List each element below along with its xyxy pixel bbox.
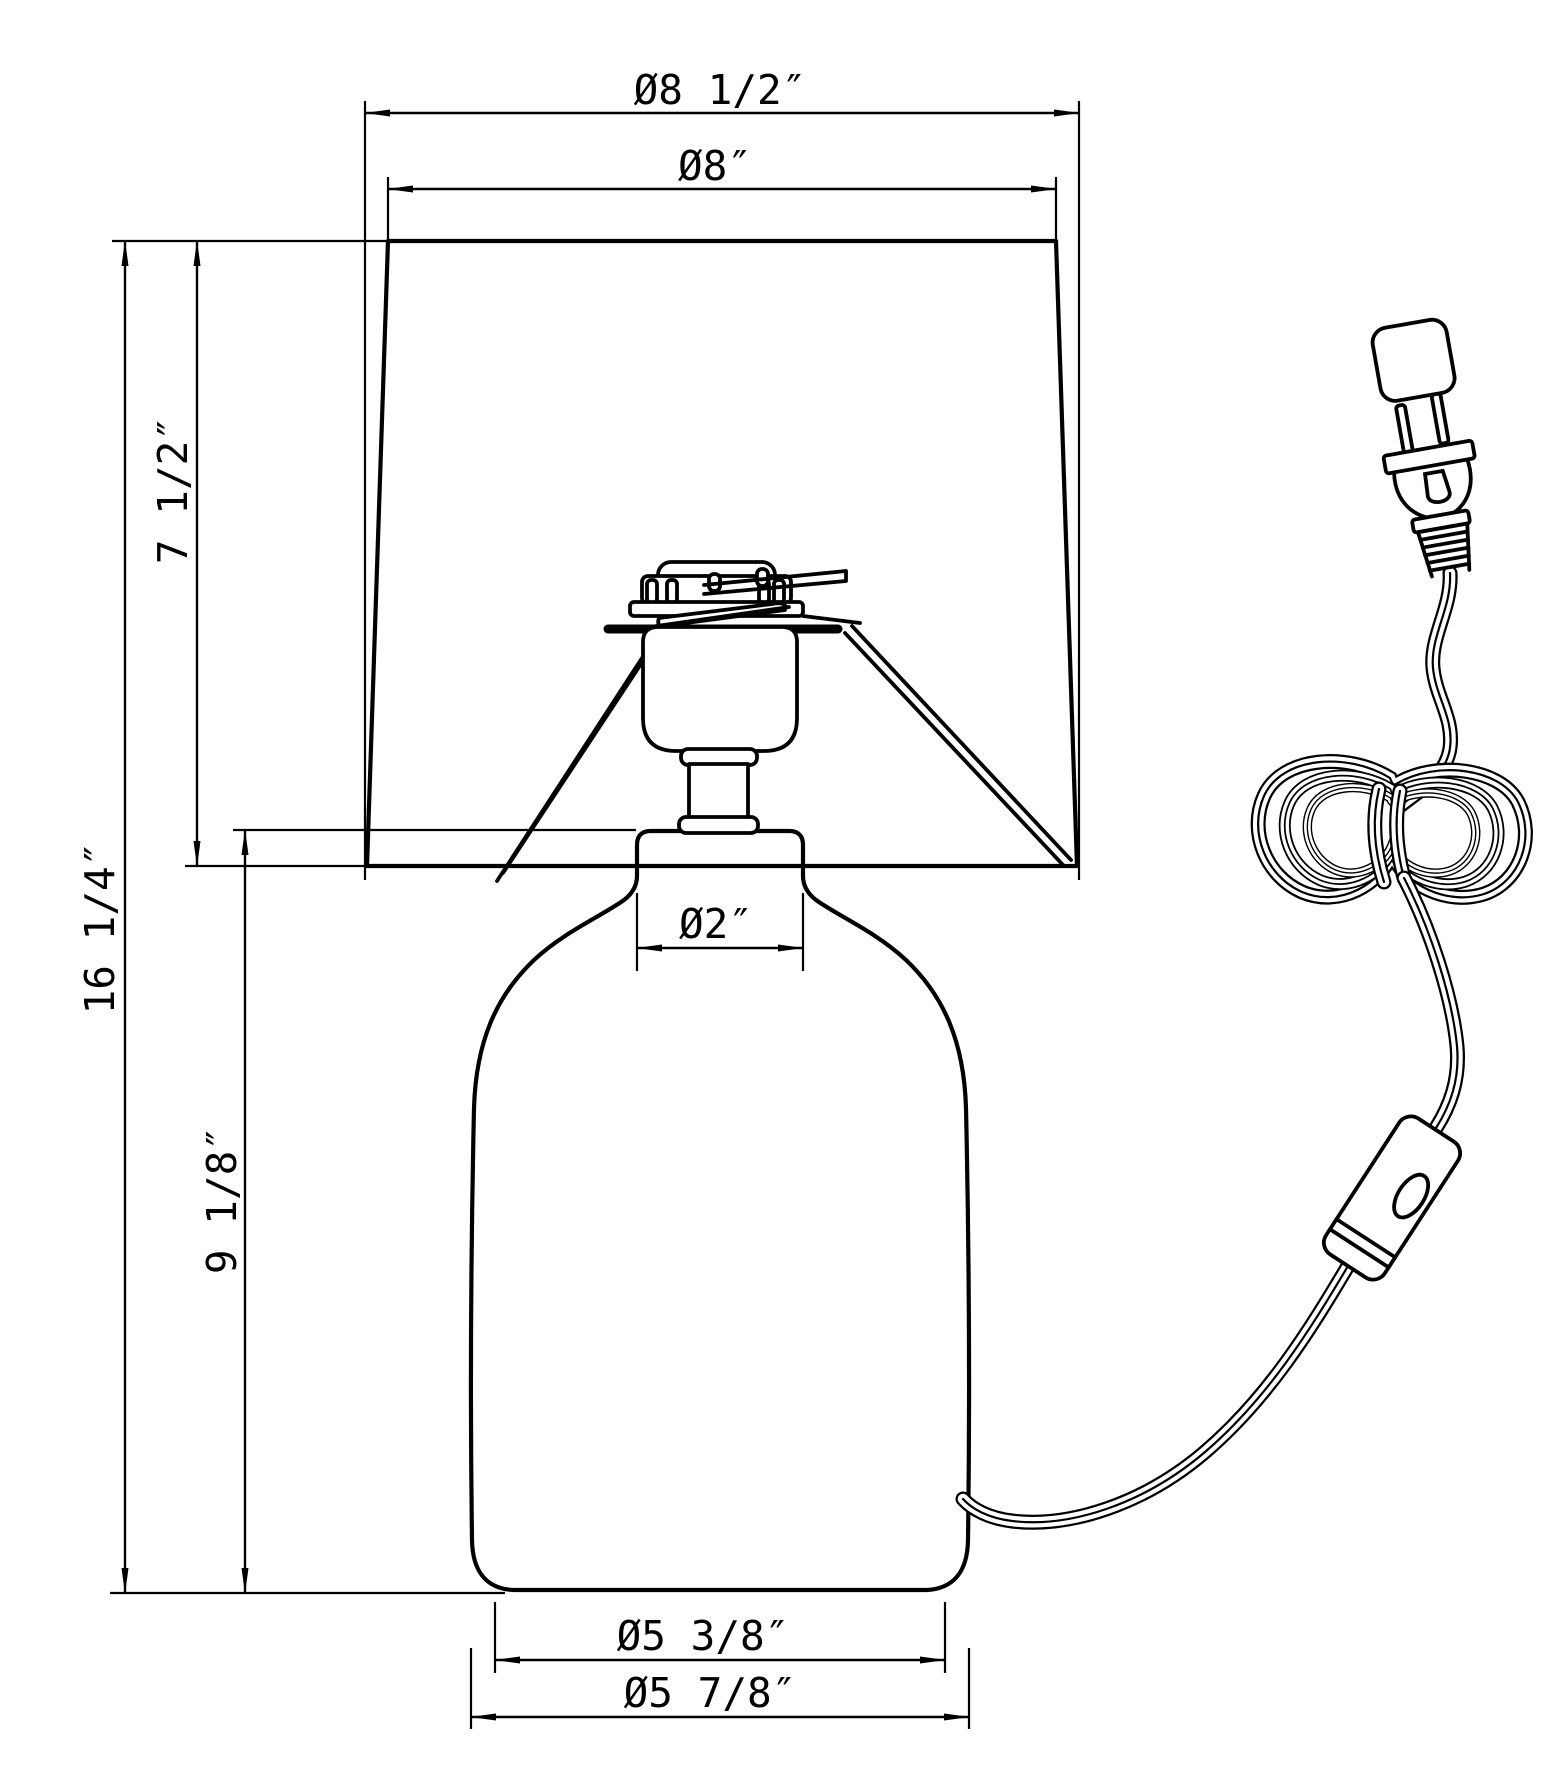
dim-label-overall-height: 16 1/4″: [76, 842, 124, 1015]
dimension-annotations: Ø8 1/2″ Ø8″ 7 1/2″ 16 1/4″ 9 1/8″ Ø2″ Ø5…: [76, 66, 1079, 1729]
extension-lines: [110, 101, 1079, 1729]
lamp-technical-drawing: Ø8 1/2″ Ø8″ 7 1/2″ 16 1/4″ 9 1/8″ Ø2″ Ø5…: [0, 0, 1560, 1780]
dim-label-base-bottom-diameter: Ø5 3/8″: [617, 1612, 790, 1660]
technical-drawing-page: Ø8 1/2″ Ø8″ 7 1/2″ 16 1/4″ 9 1/8″ Ø2″ Ø5…: [0, 0, 1560, 1780]
cord-to-base: [963, 1266, 1348, 1522]
dim-label-shade-height: 7 1/2″: [149, 416, 197, 564]
plug-strain-relief: [1418, 523, 1475, 577]
plug-safety-cap: [1370, 317, 1457, 403]
spider-leg-right: [803, 616, 1071, 866]
socket-assembly: [497, 562, 1071, 881]
dim-label-neck-diameter: Ø2″: [679, 900, 753, 948]
inline-switch: [1319, 1111, 1466, 1285]
dim-label-shade-outer-diameter: Ø8 1/2″: [634, 66, 807, 114]
power-cord: [963, 573, 1525, 1522]
neck-column: [689, 764, 748, 819]
plug-prong-right: [1431, 393, 1449, 444]
switch-housing: [1319, 1111, 1466, 1285]
dim-label-shade-top-diameter: Ø8″: [678, 142, 752, 190]
terminal-post: [667, 580, 677, 603]
socket-body: [643, 627, 797, 751]
dim-label-base-height: 9 1/8″: [198, 1126, 246, 1274]
neck-ring-bottom: [679, 817, 758, 833]
power-plug: [1361, 316, 1494, 581]
terminal-post: [647, 580, 657, 603]
dim-label-base-max-diameter: Ø5 7/8″: [624, 1669, 797, 1717]
cord-to-switch: [1404, 878, 1458, 1128]
cord-coil: [1258, 762, 1525, 898]
terminal-post: [774, 580, 784, 603]
plug-prong-left: [1396, 405, 1413, 454]
